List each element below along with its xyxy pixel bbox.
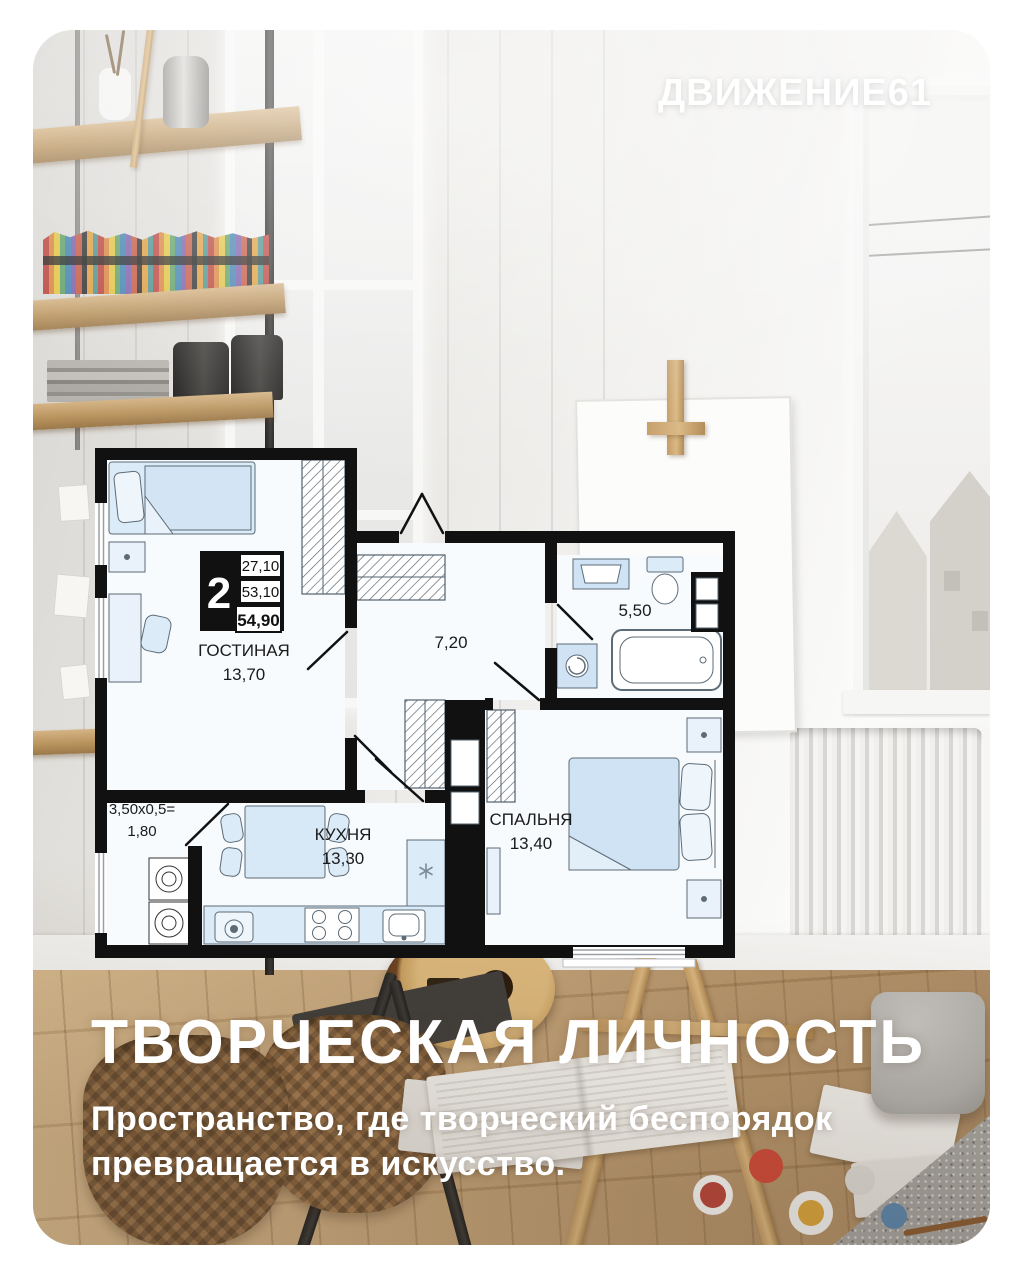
desk-edge bbox=[33, 729, 99, 755]
window-sill bbox=[843, 690, 990, 714]
floor-plan: 2 27,10 53,10 54,90 ГОСТИНАЯ 13,70 7,20 … bbox=[95, 448, 735, 970]
pinned-sketch bbox=[53, 574, 91, 619]
living-room-label: ГОСТИНАЯ bbox=[198, 641, 290, 660]
area-living-sum: 27,10 bbox=[242, 558, 280, 575]
house-window bbox=[972, 611, 988, 631]
bedroom-label: СПАЛЬНЯ bbox=[489, 810, 572, 829]
caption-block: ТВОРЧЕСКАЯ ЛИЧНОСТЬ Пространство, где тв… bbox=[91, 1010, 951, 1187]
rooms-count: 2 bbox=[207, 569, 231, 618]
black-pot bbox=[231, 335, 283, 400]
silver-vase bbox=[163, 56, 209, 128]
easel-clamp bbox=[647, 422, 705, 435]
pinned-sketch bbox=[59, 664, 90, 701]
bathroom-area: 5,50 bbox=[618, 601, 651, 620]
bedroom-area: 13,40 bbox=[510, 834, 553, 853]
easel-mast bbox=[667, 360, 684, 455]
paint-cup-blue bbox=[881, 1203, 907, 1229]
living-room-area: 13,70 bbox=[223, 665, 266, 684]
balcony-formula: 3,50x0,5= bbox=[109, 801, 176, 818]
brand-logo: ДВИЖЕНИЕ61 bbox=[658, 72, 932, 115]
subtitle-line-1: Пространство, где творческий беспорядок bbox=[91, 1100, 833, 1138]
power-line bbox=[869, 247, 990, 257]
house-window bbox=[944, 571, 960, 591]
hallway-area: 7,20 bbox=[434, 633, 467, 652]
pinned-sketch bbox=[58, 484, 90, 522]
headline-title: ТВОРЧЕСКАЯ ЛИЧНОСТЬ bbox=[91, 1010, 934, 1075]
kitchen-label: КУХНЯ bbox=[315, 825, 372, 844]
house-view bbox=[930, 471, 990, 701]
kitchen-area: 13,30 bbox=[322, 849, 365, 868]
window-glass bbox=[869, 101, 990, 701]
subtitle-line-2: превращается в искусство. bbox=[91, 1145, 566, 1183]
plan-stats-box: 2 27,10 53,10 54,90 bbox=[200, 551, 284, 632]
area-without-balcony: 53,10 bbox=[242, 584, 280, 601]
area-total: 54,90 bbox=[237, 611, 280, 630]
headline-subtitle: Пространство, где творческий беспорядок … bbox=[91, 1097, 951, 1187]
white-vase bbox=[99, 68, 131, 120]
right-window bbox=[853, 85, 990, 717]
paint-cup-yellow bbox=[789, 1191, 833, 1235]
black-pot bbox=[173, 342, 229, 400]
power-line bbox=[869, 213, 990, 226]
colored-pencils-row bbox=[43, 228, 269, 294]
house-view bbox=[869, 511, 938, 701]
poster-card: ДВИЖЕНИЕ61 bbox=[33, 30, 990, 1245]
book-stack bbox=[47, 360, 169, 402]
paint-brush bbox=[903, 1216, 988, 1237]
balcony-area: 1,80 bbox=[127, 823, 156, 840]
